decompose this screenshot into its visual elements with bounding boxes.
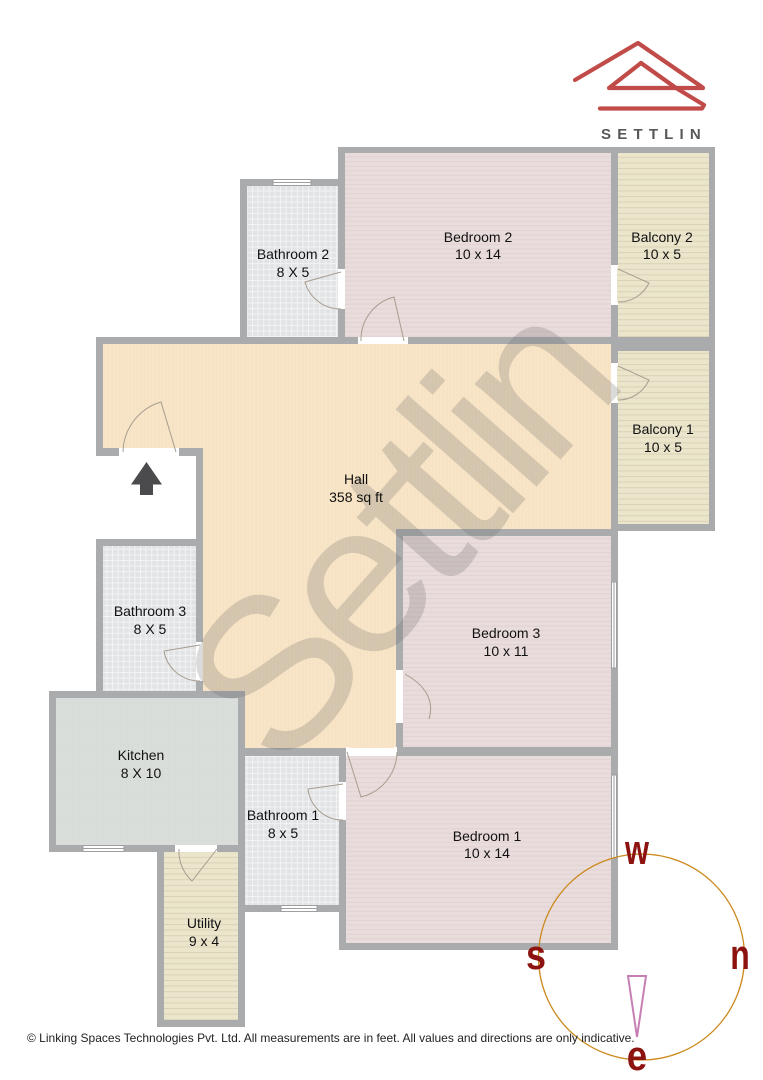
svg-text:8 X 5: 8 X 5 xyxy=(277,264,310,280)
svg-text:Utility: Utility xyxy=(187,915,221,931)
svg-text:s: s xyxy=(526,931,546,978)
svg-text:Hall: Hall xyxy=(344,471,368,487)
svg-text:© Linking Spaces Technologies: © Linking Spaces Technologies Pvt. Ltd. … xyxy=(27,1031,635,1045)
svg-text:n: n xyxy=(730,931,750,978)
svg-text:Bathroom 2: Bathroom 2 xyxy=(257,246,330,262)
svg-text:Kitchen: Kitchen xyxy=(118,747,165,763)
svg-text:10 x 14: 10 x 14 xyxy=(455,246,501,262)
svg-text:Bedroom 1: Bedroom 1 xyxy=(453,828,522,844)
svg-text:358 sq ft: 358 sq ft xyxy=(329,489,383,505)
svg-text:SETTLIN: SETTLIN xyxy=(601,126,707,143)
svg-text:Balcony 2: Balcony 2 xyxy=(631,229,693,245)
svg-text:Bathroom 3: Bathroom 3 xyxy=(114,603,187,619)
svg-text:10 x 11: 10 x 11 xyxy=(484,643,529,659)
svg-text:8 X 10: 8 X 10 xyxy=(121,765,162,781)
svg-text:Bedroom 3: Bedroom 3 xyxy=(472,625,541,641)
svg-text:Bathroom 1: Bathroom 1 xyxy=(247,807,320,823)
svg-text:Balcony 1: Balcony 1 xyxy=(632,421,694,437)
svg-text:10 x 5: 10 x 5 xyxy=(643,246,681,262)
svg-text:8 X 5: 8 X 5 xyxy=(134,621,167,637)
svg-text:9 x 4: 9 x 4 xyxy=(189,933,220,949)
svg-text:10 x 14: 10 x 14 xyxy=(464,845,510,861)
svg-text:Bedroom 2: Bedroom 2 xyxy=(444,229,513,245)
svg-text:8 x 5: 8 x 5 xyxy=(268,825,299,841)
svg-text:10 x 5: 10 x 5 xyxy=(644,439,682,455)
svg-text:w: w xyxy=(624,826,649,873)
